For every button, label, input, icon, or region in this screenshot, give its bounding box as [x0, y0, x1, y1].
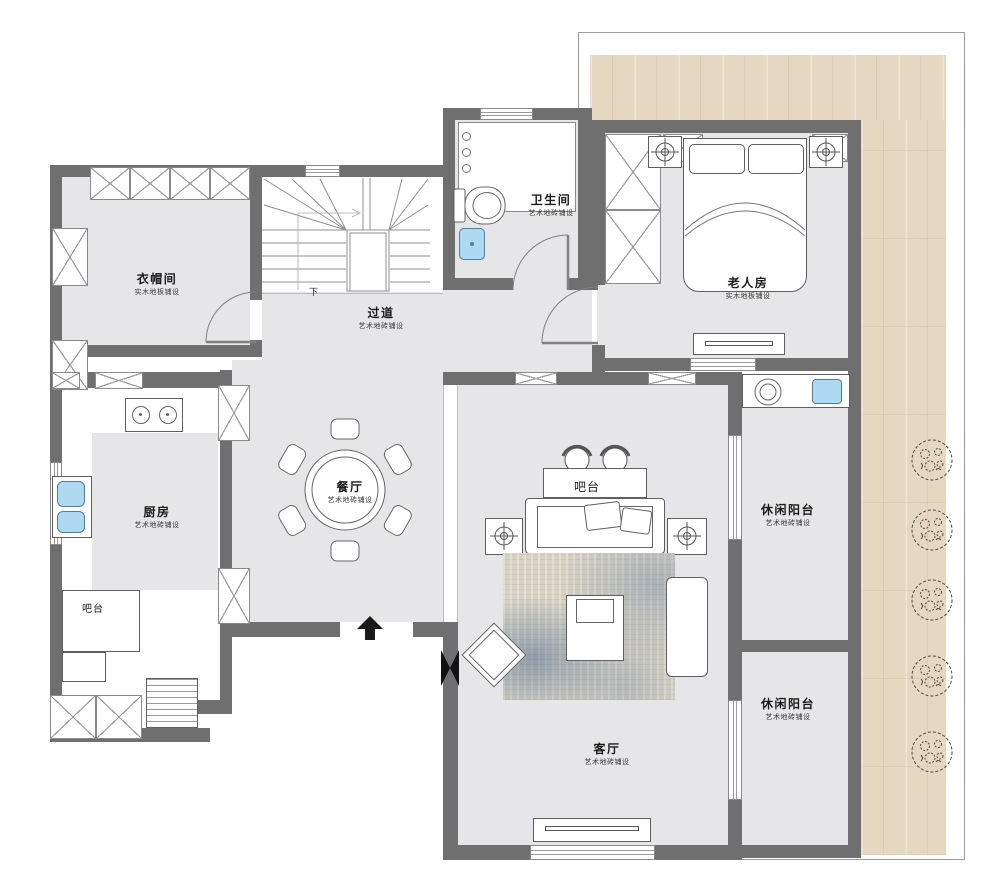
window	[728, 700, 742, 800]
wall-segment	[443, 278, 513, 290]
room-label-dining: 餐厅艺术地砖铺设	[328, 480, 373, 505]
wall-segment	[592, 120, 605, 285]
cabinet-hatch	[130, 167, 170, 200]
chaise-lounge	[666, 577, 708, 677]
balcony-lower-floor	[742, 652, 848, 845]
window	[728, 435, 742, 540]
cabinet-hatch	[210, 167, 250, 200]
label-living-bar: 吧台	[574, 478, 600, 495]
cabinet-hatch	[96, 695, 142, 739]
label-stair-down: 下	[309, 285, 319, 298]
section-marker-icon	[441, 650, 459, 686]
cabinet-hatch	[52, 228, 88, 286]
cabinet-hatch	[52, 372, 80, 389]
washing-machine-icon	[752, 376, 784, 408]
crosshair-ornament	[672, 521, 702, 551]
divider-line	[443, 385, 444, 622]
wardrobe-hatch	[605, 210, 661, 284]
cabinet-hatch	[515, 372, 557, 385]
shower-knob	[462, 132, 471, 141]
entry-arrow-icon	[357, 616, 383, 629]
cabinet-hatch	[50, 695, 96, 739]
sink-drain	[470, 242, 474, 246]
hallway-floor	[262, 292, 443, 360]
wall-segment	[262, 165, 305, 177]
window	[305, 165, 340, 177]
kitchen-sink-basin	[57, 511, 85, 533]
floor-plan: 衣帽间实木地板铺设 过道艺术地砖铺设 卫生间艺术地砖铺设 老人房实木地板铺设 厨…	[0, 0, 1000, 895]
kitchen-bar-counter	[62, 652, 106, 682]
wall-segment	[592, 358, 690, 371]
window	[480, 108, 533, 120]
cabinet-hatch	[90, 167, 130, 200]
refrigerator	[146, 678, 198, 728]
plant-icon	[909, 653, 955, 699]
wall-segment	[742, 845, 861, 858]
blanket-fold	[683, 168, 807, 238]
stair-edge-line	[262, 293, 443, 294]
wall-segment	[232, 622, 340, 637]
wall-segment	[756, 358, 861, 371]
wall-segment	[443, 372, 742, 385]
wall-segment	[250, 165, 262, 300]
room-label-kitchen: 厨房艺术地砖铺设	[135, 505, 180, 530]
room-label-hallway: 过道艺术地砖铺设	[359, 306, 404, 331]
crosshair-ornament	[811, 137, 841, 167]
wall-segment	[848, 120, 861, 372]
wall-segment	[848, 372, 861, 845]
cabinet-hatch	[648, 372, 696, 385]
burner-icon	[159, 406, 177, 424]
shower-knob	[462, 164, 471, 173]
plant-icon	[909, 437, 955, 483]
burner-icon	[132, 406, 150, 424]
staircase	[262, 177, 430, 292]
wall-segment	[50, 372, 62, 740]
room-label-cloakroom: 衣帽间实木地板铺设	[135, 272, 180, 297]
kitchen-sink-basin	[57, 481, 85, 507]
crosshair-ornament	[489, 521, 519, 551]
coffee-table-tray	[576, 599, 614, 623]
tv-screen	[545, 826, 639, 831]
door-swing	[202, 288, 262, 348]
room-label-living: 客厅艺术地砖铺设	[585, 742, 630, 767]
sofa-pillow	[619, 507, 652, 535]
entry-arrow-stem	[365, 629, 375, 640]
wall-segment	[592, 345, 605, 372]
shower-knob	[462, 148, 471, 157]
balcony-sink	[812, 379, 842, 404]
label-kitchen-bar: 吧台	[82, 600, 104, 615]
wall-segment	[578, 108, 592, 290]
sofa-pillow	[584, 501, 623, 531]
crosshair-ornament	[650, 137, 680, 167]
wall-segment	[340, 165, 455, 177]
cabinet-hatch	[218, 568, 250, 624]
window	[530, 845, 655, 860]
room-label-balcony-upper: 休闲阳台艺术地砖铺设	[761, 503, 815, 528]
room-label-elder-bedroom: 老人房实木地板铺设	[726, 276, 771, 301]
plant-icon	[909, 507, 955, 553]
tv-screen	[705, 341, 773, 346]
cabinet-hatch	[218, 385, 250, 441]
wall-segment	[592, 120, 861, 133]
room-label-balcony-lower: 休闲阳台艺术地砖铺设	[761, 697, 815, 722]
cabinet-hatch	[95, 372, 143, 389]
door-swing	[538, 283, 602, 347]
toilet-icon	[452, 186, 508, 226]
wall-segment	[742, 640, 848, 652]
room-label-bathroom: 卫生间艺术地砖铺设	[529, 193, 574, 218]
divider-line	[457, 385, 458, 622]
plant-icon	[909, 577, 955, 623]
cabinet-hatch	[170, 167, 210, 200]
plant-icon	[909, 729, 955, 775]
window	[690, 358, 756, 371]
